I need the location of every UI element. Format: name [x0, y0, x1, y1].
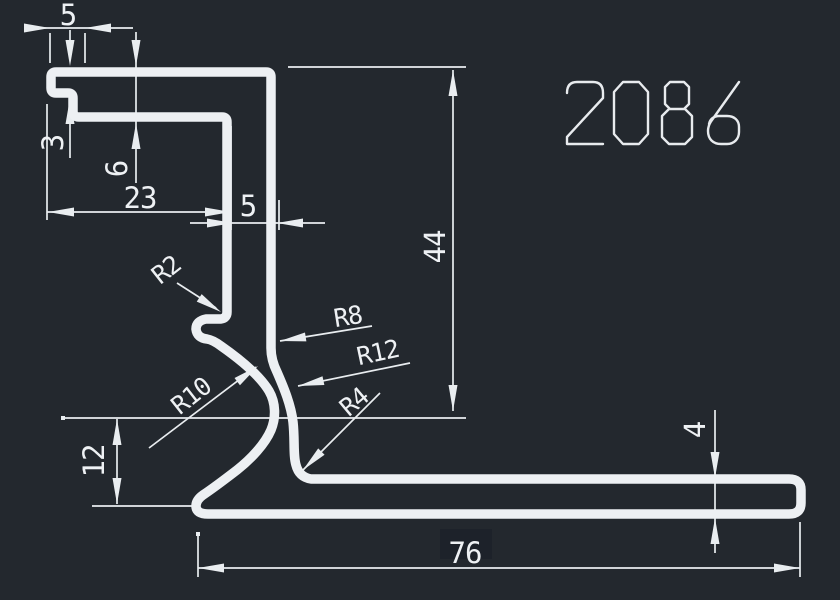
arrowhead: [132, 40, 141, 66]
dim-arrows: [24, 24, 800, 573]
arrowhead: [297, 376, 324, 390]
arrowhead: [711, 518, 720, 544]
cad-canvas: 5 3 6 23 5 44 12 4 76 R2 R8 R12 R4 R10: [0, 0, 840, 600]
dim-bowl-height-label: 12: [77, 445, 111, 478]
arrowhead: [277, 219, 303, 228]
part-number-digit: [662, 82, 692, 144]
radius-flange-fillet-label: R4: [334, 382, 374, 422]
arrowhead: [197, 294, 224, 316]
dim-hook-depth-label: 3: [36, 135, 70, 151]
arrowhead: [279, 332, 306, 345]
arrowhead: [48, 208, 74, 217]
arrowhead: [300, 448, 325, 473]
profile-outline: [51, 72, 801, 514]
arrowheads: [24, 24, 800, 573]
dim-stem-width-label: 5: [240, 189, 256, 223]
arrowhead: [774, 564, 800, 573]
part-number: [567, 82, 739, 144]
defpoint-marker: [196, 532, 200, 536]
dimension-labels: 5 3 6 23 5 44 12 4 76: [36, 0, 712, 570]
arrowhead: [113, 419, 122, 445]
dim-top-hook-width-label: 5: [60, 0, 76, 32]
radius-neck-outer-label: R8: [332, 300, 364, 333]
dim-top-arm-length-label: 23: [124, 181, 157, 215]
arrowhead: [449, 385, 458, 411]
defpoint-marker: [61, 416, 65, 420]
drawing-svg: 5 3 6 23 5 44 12 4 76 R2 R8 R12 R4 R10: [0, 0, 840, 600]
part-number-digit: [708, 82, 739, 144]
arrowhead: [85, 24, 111, 33]
profile: [51, 72, 801, 514]
dim-flange-thickness-label: 4: [678, 421, 712, 438]
arrowhead: [132, 123, 141, 149]
arrowhead: [198, 564, 224, 573]
dim-arm-step-label: 6: [100, 161, 134, 177]
arrowhead: [24, 24, 50, 33]
dim-overall-height-label: 44: [418, 230, 452, 263]
part-number-digit: [614, 82, 648, 144]
arrowhead: [66, 40, 75, 66]
arrowhead: [113, 478, 122, 504]
part-number-digit: [567, 82, 603, 144]
dimension-lines: [25, 28, 800, 577]
radius-notch-label: R2: [146, 250, 186, 290]
dim-flange-length-label: 76: [449, 536, 482, 570]
arrowhead: [711, 452, 720, 478]
arrowhead: [449, 70, 458, 96]
radius-bowl-label: R10: [166, 371, 217, 420]
